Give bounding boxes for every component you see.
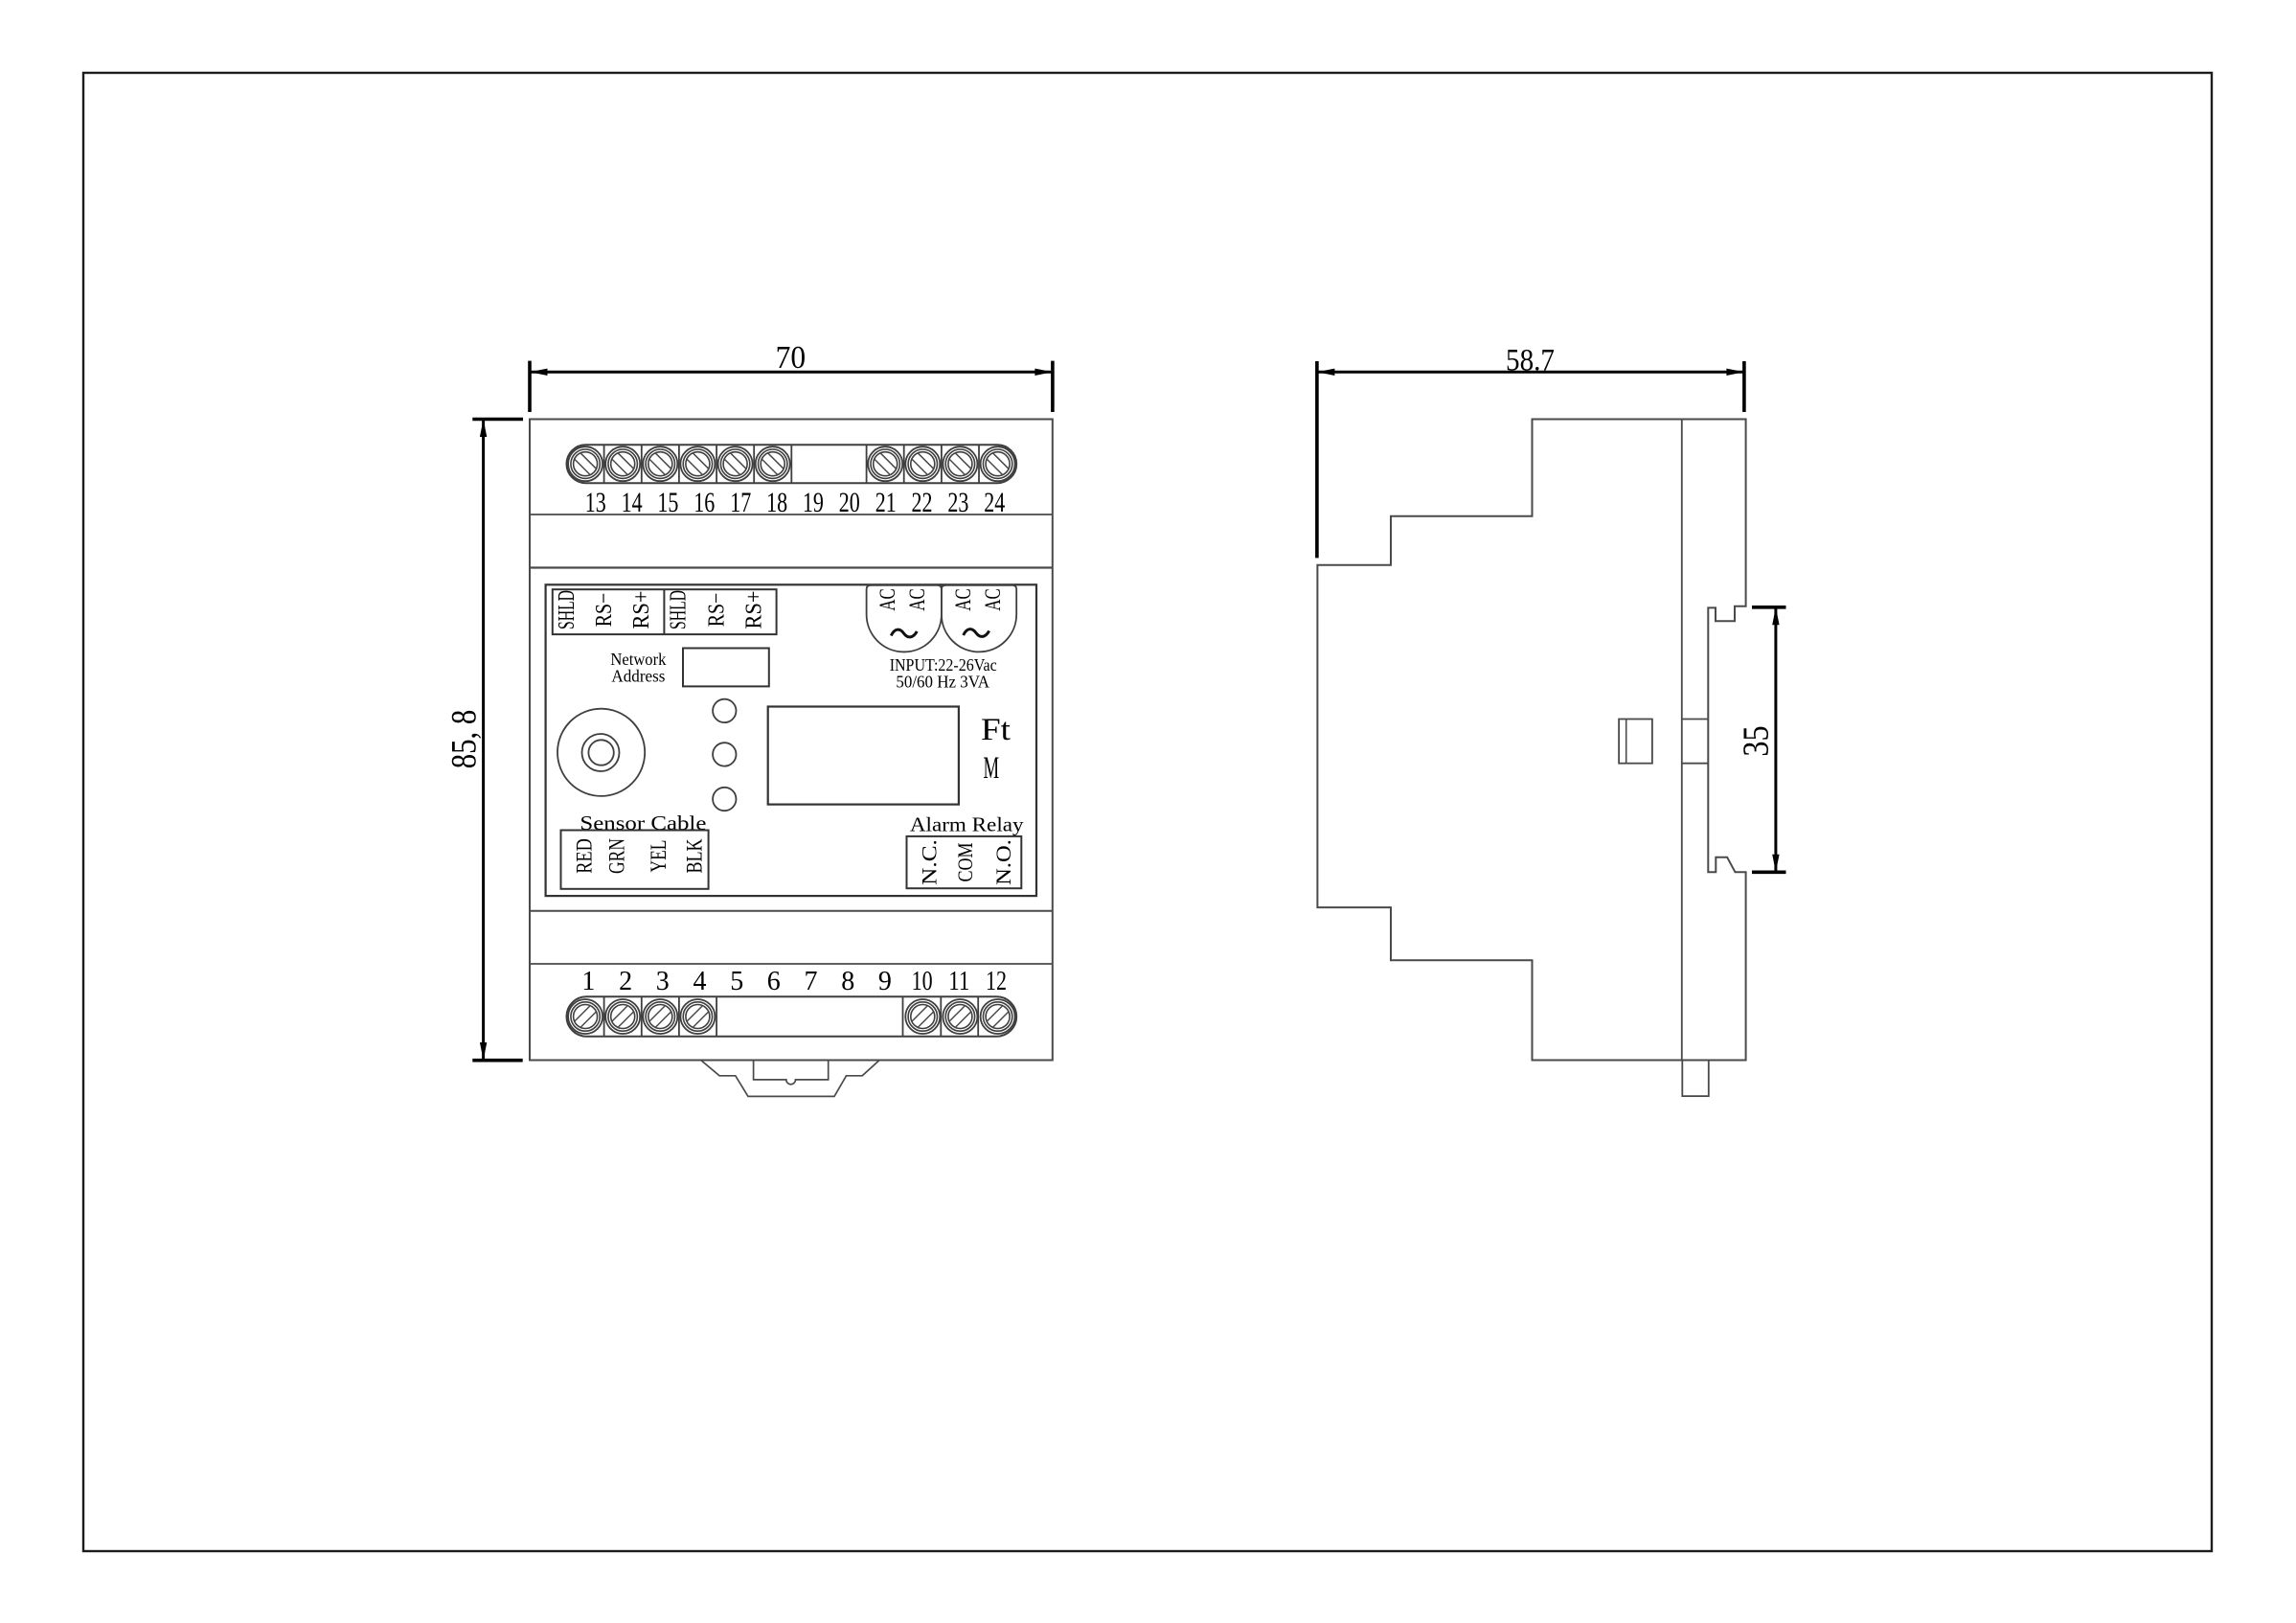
svg-text:14: 14 bbox=[622, 487, 643, 518]
svg-text:GRN: GRN bbox=[605, 838, 629, 874]
svg-text:70: 70 bbox=[776, 340, 807, 376]
svg-text:17: 17 bbox=[730, 487, 751, 518]
svg-text:AC: AC bbox=[981, 588, 1005, 610]
svg-text:24: 24 bbox=[984, 487, 1005, 518]
svg-text:N.O.: N.O. bbox=[991, 839, 1015, 885]
svg-text:3: 3 bbox=[656, 967, 670, 996]
svg-text:RS−: RS− bbox=[592, 593, 617, 628]
svg-text:22: 22 bbox=[912, 487, 933, 518]
svg-text:SHLD: SHLD bbox=[555, 590, 580, 629]
svg-text:15: 15 bbox=[657, 487, 678, 518]
svg-text:COM: COM bbox=[953, 842, 977, 881]
svg-text:8: 8 bbox=[841, 967, 854, 996]
svg-text:Alarm Relay: Alarm Relay bbox=[910, 813, 1024, 836]
svg-text:85, 8: 85, 8 bbox=[445, 710, 485, 769]
svg-text:9: 9 bbox=[878, 967, 892, 996]
svg-text:Ft: Ft bbox=[981, 713, 1011, 747]
svg-text:RS+: RS+ bbox=[741, 591, 766, 629]
svg-text:YEL: YEL bbox=[647, 840, 671, 873]
svg-text:18: 18 bbox=[766, 487, 787, 518]
svg-text:12: 12 bbox=[986, 967, 1007, 996]
svg-text:BLK: BLK bbox=[683, 838, 707, 873]
svg-text:13: 13 bbox=[585, 487, 606, 518]
svg-text:20: 20 bbox=[839, 487, 860, 518]
svg-text:23: 23 bbox=[947, 487, 968, 518]
svg-text:58.7: 58.7 bbox=[1506, 343, 1555, 377]
svg-text:RED: RED bbox=[572, 838, 596, 874]
svg-text:AC: AC bbox=[905, 588, 929, 610]
svg-text:5: 5 bbox=[730, 967, 743, 996]
svg-text:M: M bbox=[984, 751, 1000, 786]
svg-text:50/60 Hz 3VA: 50/60 Hz 3VA bbox=[896, 673, 989, 692]
svg-text:2: 2 bbox=[619, 967, 632, 996]
svg-text:4: 4 bbox=[693, 967, 707, 996]
svg-text:16: 16 bbox=[693, 487, 715, 518]
svg-text:1: 1 bbox=[581, 967, 595, 996]
svg-text:35: 35 bbox=[1737, 725, 1777, 756]
svg-text:6: 6 bbox=[767, 967, 781, 996]
svg-text:SHLD: SHLD bbox=[667, 590, 692, 629]
svg-text:11: 11 bbox=[948, 967, 969, 996]
svg-text:RS−: RS− bbox=[705, 593, 730, 628]
svg-text:AC: AC bbox=[875, 588, 899, 610]
svg-text:N.C.: N.C. bbox=[917, 839, 941, 885]
svg-text:19: 19 bbox=[803, 487, 824, 518]
svg-text:Address: Address bbox=[611, 667, 665, 686]
svg-text:10: 10 bbox=[912, 967, 933, 996]
svg-text:21: 21 bbox=[875, 487, 897, 518]
svg-text:RS+: RS+ bbox=[629, 591, 654, 629]
svg-text:AC: AC bbox=[951, 588, 975, 610]
svg-text:7: 7 bbox=[805, 967, 818, 996]
